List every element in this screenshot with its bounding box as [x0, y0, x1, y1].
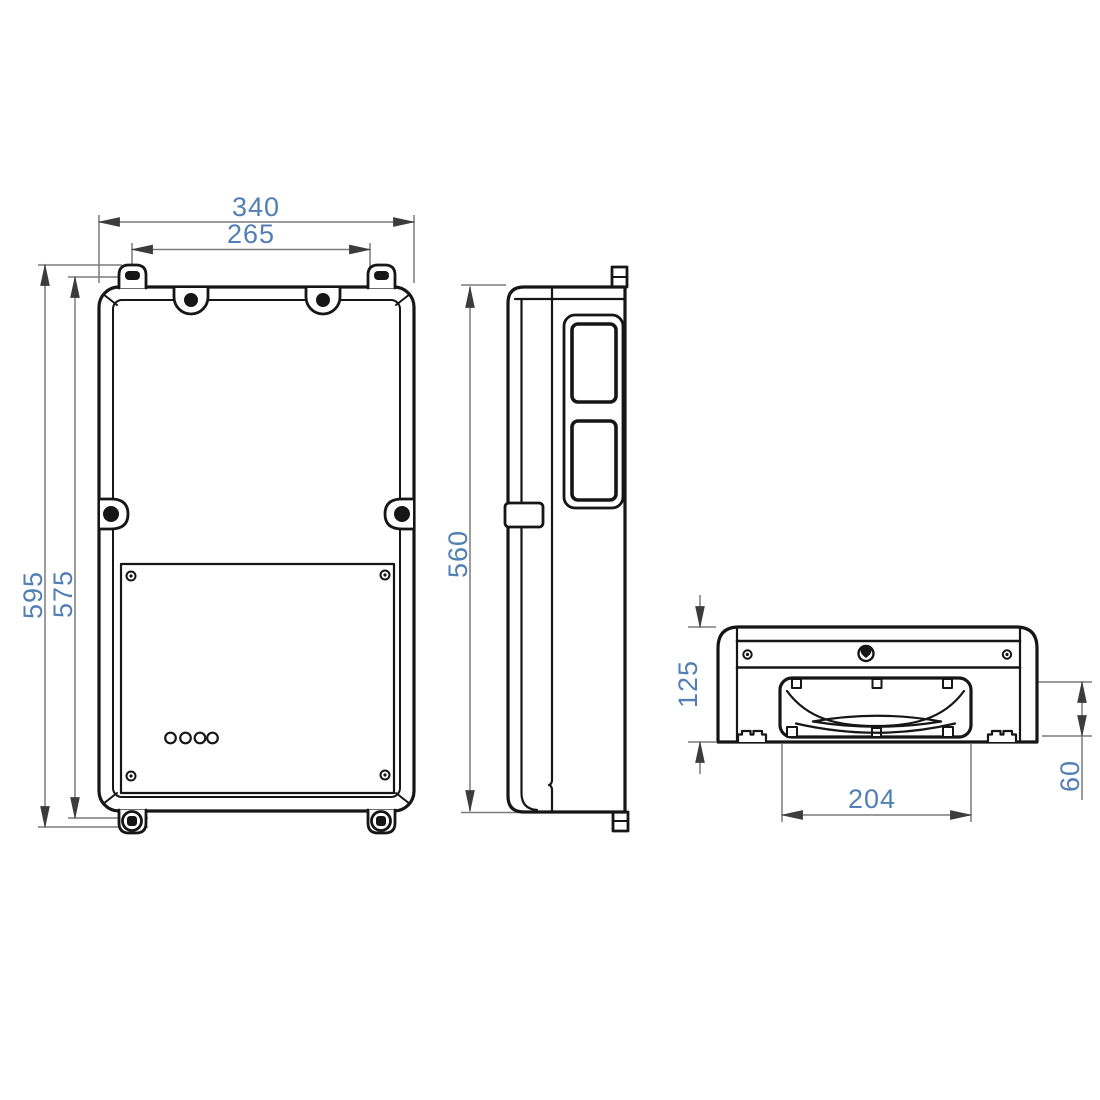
side-tab-bottom: [613, 812, 628, 831]
bottom-view: 125 60 204: [673, 595, 1092, 822]
dimension-top-tab-spacing: 265: [132, 219, 370, 282]
panel-hole: [195, 733, 206, 744]
hanging-tab-right: [306, 288, 340, 314]
dimension-overall-depth: 125: [673, 595, 716, 774]
recess-tick: [873, 679, 882, 688]
ear-hole: [394, 506, 410, 522]
dimension-label: 560: [443, 530, 473, 578]
ear-hole: [103, 506, 119, 522]
dimension-label: 265: [227, 219, 275, 249]
dimension-label: 125: [673, 660, 703, 708]
foot-bottom-left: [119, 810, 146, 833]
recess-tick: [792, 679, 801, 688]
dimension-label: 595: [18, 571, 48, 619]
tab-hole: [184, 293, 198, 307]
grommet-hole: [127, 816, 137, 826]
dimension-label: 340: [232, 192, 280, 222]
technical-drawing: 340 265 595 575: [0, 0, 1100, 1100]
dimension-label: 575: [48, 570, 78, 618]
dimension-recess-width: 204: [782, 744, 971, 822]
panel-hole: [180, 733, 191, 744]
latch: [505, 503, 543, 527]
drawing-canvas: 340 265 595 575: [0, 0, 1100, 1100]
side-view: 560: [443, 267, 628, 831]
recess-tick: [943, 679, 952, 688]
foot-bottom-right: [368, 810, 395, 833]
mid-ear-right: [385, 499, 413, 529]
recess-corner-tab: [787, 727, 797, 737]
slot-hole: [125, 271, 140, 280]
mount-ear-top-right: [368, 265, 395, 288]
hanging-tab-left: [174, 288, 208, 314]
front-view: 340 265 595 575: [18, 192, 414, 833]
mount-ear-top-left: [119, 265, 146, 288]
access-panel: [121, 564, 394, 793]
tab-hole: [316, 293, 330, 307]
grommet-hole: [376, 816, 386, 826]
dimension-label: 60: [1055, 760, 1085, 792]
panel-hole: [165, 733, 176, 744]
mid-ear-left: [100, 499, 128, 529]
dimension-label: 204: [848, 784, 896, 814]
recess-corner-tab: [943, 727, 953, 737]
side-tab-top: [612, 267, 627, 287]
panel-hole: [207, 733, 218, 744]
slot-hole: [374, 271, 389, 280]
